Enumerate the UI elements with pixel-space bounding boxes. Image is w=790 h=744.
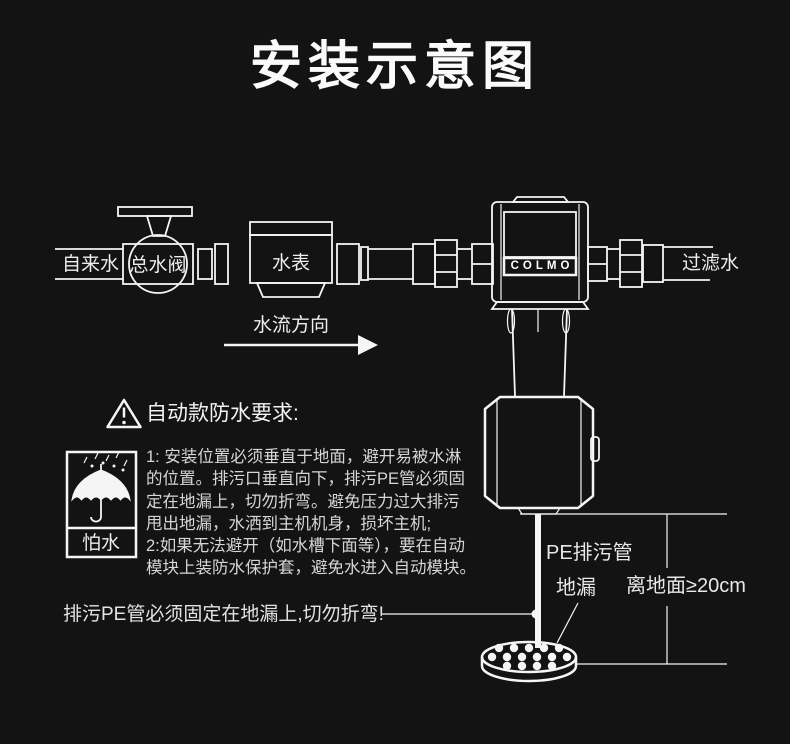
inlet-fittings bbox=[413, 240, 493, 287]
keep-dry-label: 怕水 bbox=[82, 533, 120, 555]
auto-module-shape bbox=[485, 397, 599, 514]
floor-drain-shape bbox=[482, 642, 576, 681]
warning-title: 自动款防水要求: bbox=[146, 402, 299, 426]
device-neck bbox=[508, 309, 570, 396]
callout-lines bbox=[381, 603, 578, 643]
diagram-lineart bbox=[0, 0, 790, 744]
label-filtered-water: 过滤水 bbox=[682, 253, 739, 275]
label-flow-direction: 水流方向 bbox=[253, 315, 329, 337]
pe-drain-pipe-shape bbox=[535, 514, 541, 648]
label-floor-drain: 地漏 bbox=[556, 577, 596, 600]
fix-note: 排污PE管必须固定在地漏上,切勿折弯! bbox=[63, 604, 384, 626]
label-pe-pipe: PE排污管 bbox=[546, 542, 633, 565]
label-colmo-brand: COLMO bbox=[511, 260, 574, 273]
label-height-requirement: 离地面≥20cm bbox=[626, 575, 746, 598]
warning-triangle-icon bbox=[108, 400, 141, 427]
coupler-fittings-left bbox=[198, 244, 228, 284]
colmo-device-shape bbox=[492, 197, 588, 309]
flow-arrow bbox=[224, 335, 378, 355]
label-main-valve: 总水阀 bbox=[129, 255, 186, 277]
warning-instructions: 1: 安装位置必须垂直于地面，避开易被水淋 的位置。排污口垂直向下，排污PE管必… bbox=[146, 446, 482, 580]
label-water-meter: 水表 bbox=[272, 253, 310, 275]
label-tap-water: 自来水 bbox=[62, 254, 119, 276]
page-title: 安装示意图 bbox=[0, 38, 790, 98]
installation-diagram: 安装示意图 自来水 总水阀 水表 COLMO 过滤水 水流方向 自动款防水要求:… bbox=[0, 0, 790, 744]
main-valve-shape bbox=[118, 207, 193, 293]
